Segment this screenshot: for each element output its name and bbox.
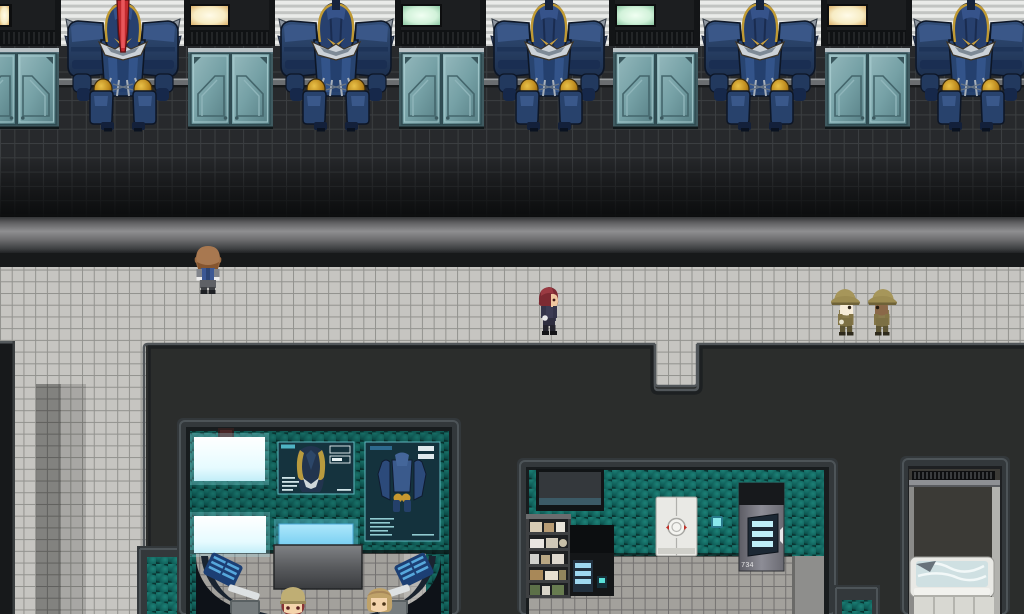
svg-text:734: 734 [741,562,754,570]
